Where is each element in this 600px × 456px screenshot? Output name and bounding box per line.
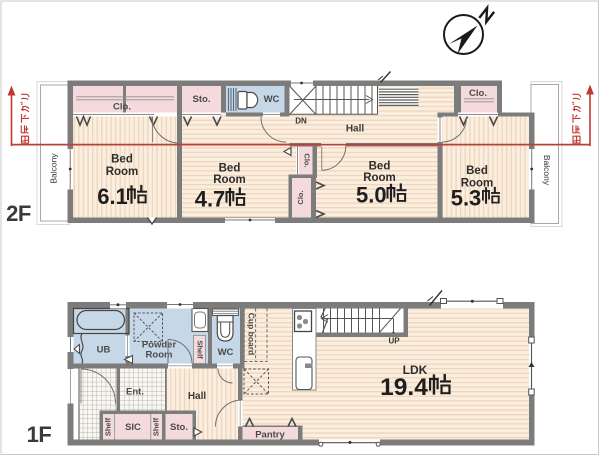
svg-text:SIC: SIC <box>125 422 141 433</box>
svg-text:19.4: 19.4 <box>380 374 428 401</box>
svg-text:Shelf: Shelf <box>196 340 205 359</box>
svg-text:Balcony: Balcony <box>542 155 552 186</box>
svg-text:Shelf: Shelf <box>103 417 112 436</box>
svg-text:Sto.: Sto. <box>170 422 188 433</box>
svg-text:Clo.: Clo. <box>303 153 312 167</box>
svg-text:Pantry: Pantry <box>255 430 285 441</box>
svg-text:Bed: Bed <box>466 165 488 177</box>
svg-text:Hall: Hall <box>346 124 365 135</box>
svg-text:UP: UP <box>388 337 400 346</box>
svg-text:Clo.: Clo. <box>296 190 305 204</box>
svg-text:Bed: Bed <box>111 154 133 166</box>
svg-text:Clo.: Clo. <box>113 102 131 113</box>
svg-text:WC: WC <box>264 94 280 105</box>
svg-text:5.0: 5.0 <box>356 183 387 208</box>
svg-text:Bed: Bed <box>369 161 391 173</box>
svg-text:DN: DN <box>295 117 307 126</box>
svg-text:Room: Room <box>106 166 139 178</box>
svg-text:UB: UB <box>97 345 111 356</box>
svg-text:Room: Room <box>213 174 246 186</box>
svg-text:Bed: Bed <box>219 163 241 175</box>
svg-text:Shelf: Shelf <box>151 417 160 436</box>
svg-text:WC: WC <box>218 347 234 358</box>
svg-text:Sto.: Sto. <box>193 94 211 105</box>
svg-text:Clo.: Clo. <box>469 88 487 99</box>
svg-text:2F: 2F <box>6 201 31 226</box>
svg-text:Ent.: Ent. <box>126 387 144 398</box>
svg-text:1F: 1F <box>27 422 52 447</box>
svg-text:4.7: 4.7 <box>195 187 226 212</box>
svg-text:Cup board: Cup board <box>246 313 256 356</box>
svg-text:Balcony: Balcony <box>48 153 58 184</box>
svg-text:Hall: Hall <box>188 391 207 402</box>
svg-text:5.3: 5.3 <box>451 186 482 211</box>
svg-text:6.1: 6.1 <box>97 184 128 209</box>
